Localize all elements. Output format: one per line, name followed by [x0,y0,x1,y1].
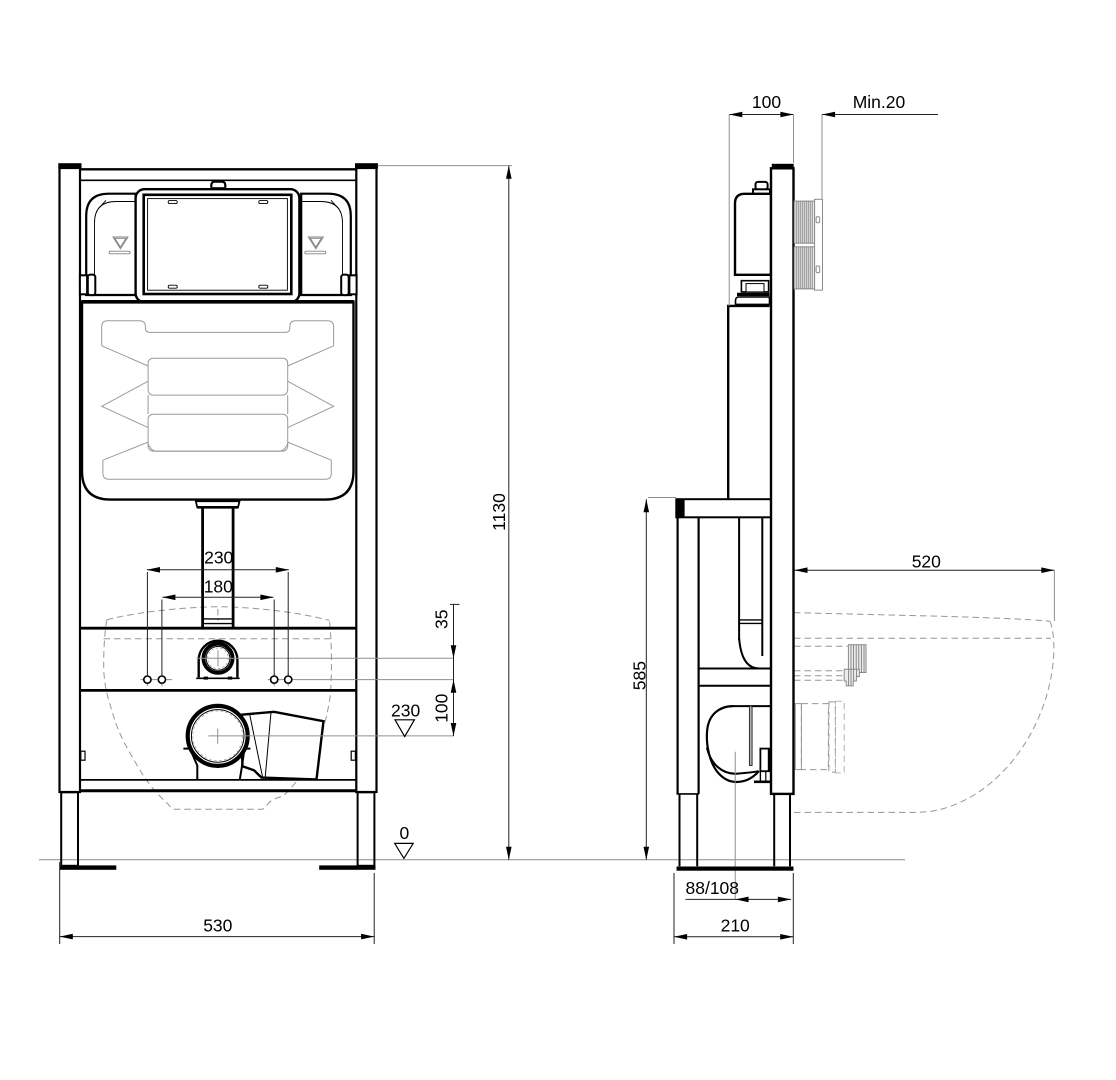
svg-text:530: 530 [203,916,232,936]
svg-text:230: 230 [391,701,420,721]
svg-text:88/108: 88/108 [686,878,740,898]
svg-text:100: 100 [752,92,781,112]
svg-text:35: 35 [432,610,452,629]
svg-text:1130: 1130 [489,493,509,531]
svg-text:210: 210 [721,916,750,936]
svg-text:520: 520 [912,552,941,572]
svg-text:Min.20: Min.20 [853,92,906,112]
svg-text:100: 100 [432,693,452,722]
svg-text:180: 180 [204,577,233,597]
svg-text:0: 0 [400,823,410,843]
svg-text:585: 585 [630,661,650,690]
svg-text:230: 230 [204,548,233,568]
